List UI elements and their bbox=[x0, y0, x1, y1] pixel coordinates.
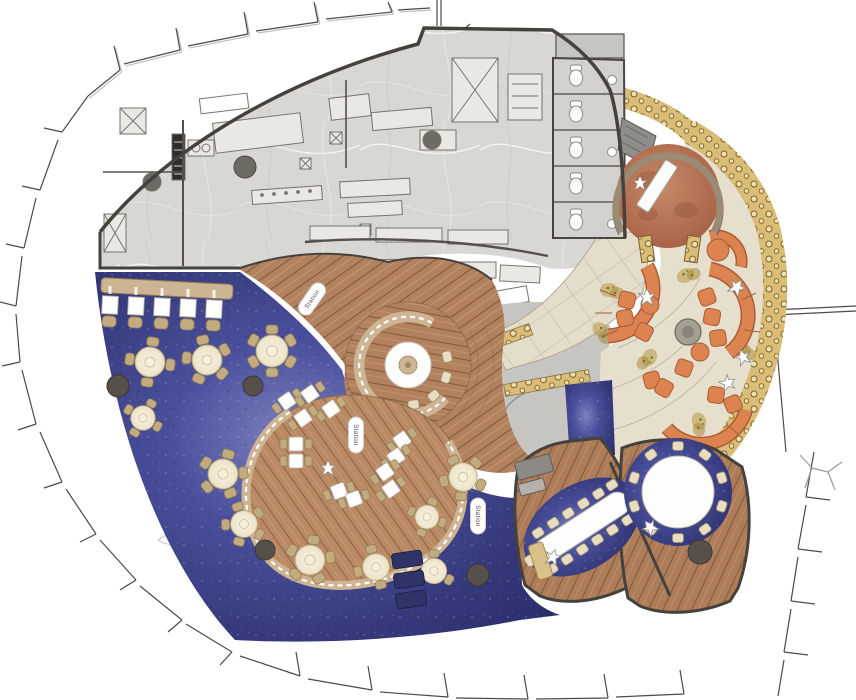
toilet-icon bbox=[570, 65, 583, 86]
toilet-icon bbox=[570, 101, 583, 122]
pdr-round-table bbox=[642, 456, 714, 528]
station-label: Station bbox=[471, 498, 486, 534]
facade-tree-sketch bbox=[800, 455, 842, 490]
station-label: Station bbox=[349, 417, 364, 453]
facade-bottom bbox=[240, 652, 684, 699]
booth bbox=[101, 296, 119, 328]
private-dining-rooms bbox=[505, 438, 749, 612]
service-station bbox=[688, 540, 712, 564]
navy-counters bbox=[391, 550, 427, 609]
toilet-icon bbox=[570, 173, 583, 194]
facade-east-line bbox=[773, 306, 856, 452]
floor-plan-canvas: Station Station Station bbox=[0, 0, 856, 700]
booth bbox=[127, 297, 145, 329]
terrace-planter bbox=[675, 319, 701, 345]
facade-right bbox=[778, 452, 830, 696]
booth bbox=[205, 300, 223, 332]
toilet-icon bbox=[570, 137, 583, 158]
toilet-icon bbox=[570, 209, 583, 230]
booth bbox=[179, 299, 197, 331]
svg-text:Station: Station bbox=[352, 424, 358, 445]
booth bbox=[153, 298, 171, 330]
svg-text:Station: Station bbox=[474, 505, 480, 526]
